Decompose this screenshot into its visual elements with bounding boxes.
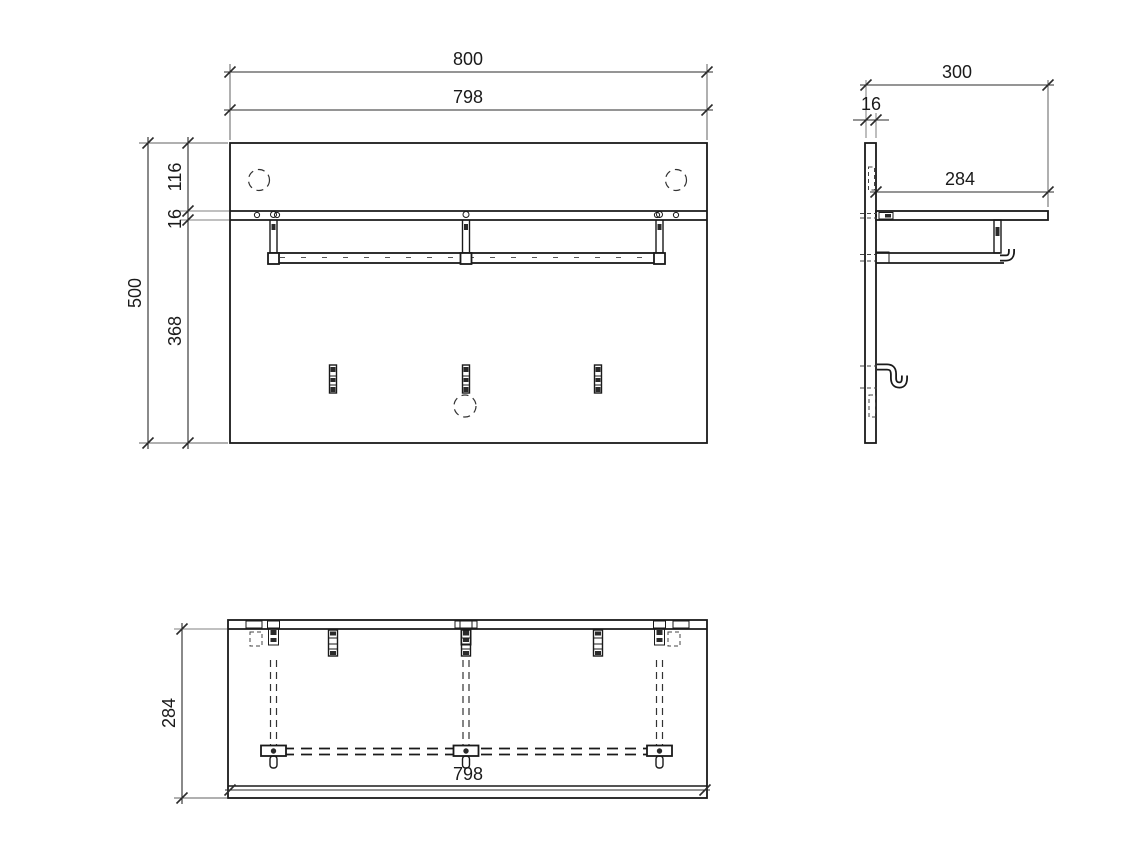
plan-rail-bracket-left: [261, 660, 286, 768]
front-mount-hole-left: [249, 170, 270, 191]
front-coat-hook-right: [595, 365, 602, 393]
side-shelf-profile: [876, 211, 1048, 220]
front-view: 800 798 500 116 16 368: [125, 49, 713, 449]
coat-rack-technical-drawing: 800 798 500 116 16 368: [0, 0, 1131, 848]
side-rail-arm: [860, 249, 1012, 263]
side-coat-hook: [860, 366, 905, 388]
side-dim-overall-depth: 300: [860, 62, 1054, 91]
side-keyhole-slot-hidden: [869, 167, 875, 190]
plan-mount-clip-left: [246, 621, 262, 646]
front-dim-overall-width: 800: [224, 49, 713, 78]
side-back-panel-outline: [865, 143, 876, 443]
plan-dim-depth-label: 284: [159, 698, 179, 728]
front-back-panel-outline: [230, 143, 707, 443]
side-dim-shelf-depth: 284: [870, 169, 1054, 198]
side-dim-panel-thickness: 16: [853, 94, 889, 126]
front-coat-hook-left: [330, 365, 337, 393]
front-dim-overall-height-label: 500: [125, 278, 145, 308]
plan-dim-inner-width-label: 798: [453, 764, 483, 784]
plan-dim-depth: 284: [159, 623, 188, 804]
side-dim-overall-depth-label: 300: [942, 62, 972, 82]
plan-view: 284: [159, 620, 711, 804]
side-extension-lines: [866, 80, 1048, 209]
front-dim-below-shelf-label: 368: [165, 316, 185, 346]
plan-dim-inner-width: 798: [225, 764, 711, 796]
side-rail-bolt: [994, 220, 1001, 253]
plan-rail-bracket-center: [454, 660, 479, 768]
front-dim-panel-width: 798: [224, 87, 713, 116]
side-lower-fitting-hidden: [869, 395, 876, 417]
plan-hook-left: [329, 630, 338, 656]
front-shelf-screw-left: [254, 212, 259, 217]
plan-bracket-left: [268, 621, 280, 645]
plan-mount-clip-right: [668, 621, 689, 646]
front-dim-chain: 116 16 368: [165, 137, 194, 449]
plan-hook-right: [594, 630, 603, 656]
front-dim-panel-width-label: 798: [453, 87, 483, 107]
front-mount-hole-bottom-center: [454, 395, 476, 417]
side-view: 300 16 284: [853, 62, 1054, 443]
front-dim-shelf-thickness-label: 16: [165, 209, 185, 229]
front-dim-overall-width-label: 800: [453, 49, 483, 69]
front-dim-overall-height: 500: [125, 137, 154, 449]
front-dim-top-offset-label: 116: [165, 163, 185, 192]
technical-drawing-page: 800 798 500 116 16 368: [0, 0, 1131, 848]
front-coat-hook-center: [463, 365, 470, 393]
side-dim-shelf-depth-label: 284: [945, 169, 975, 189]
plan-hook-center: [462, 630, 471, 656]
plan-bracket-right: [654, 621, 666, 645]
front-shelf-screw-right: [673, 212, 678, 217]
side-dim-panel-thickness-label: 16: [861, 94, 881, 114]
plan-center-plate: [455, 621, 477, 628]
front-mount-hole-right: [666, 170, 687, 191]
plan-rail-bracket-right: [647, 660, 672, 768]
